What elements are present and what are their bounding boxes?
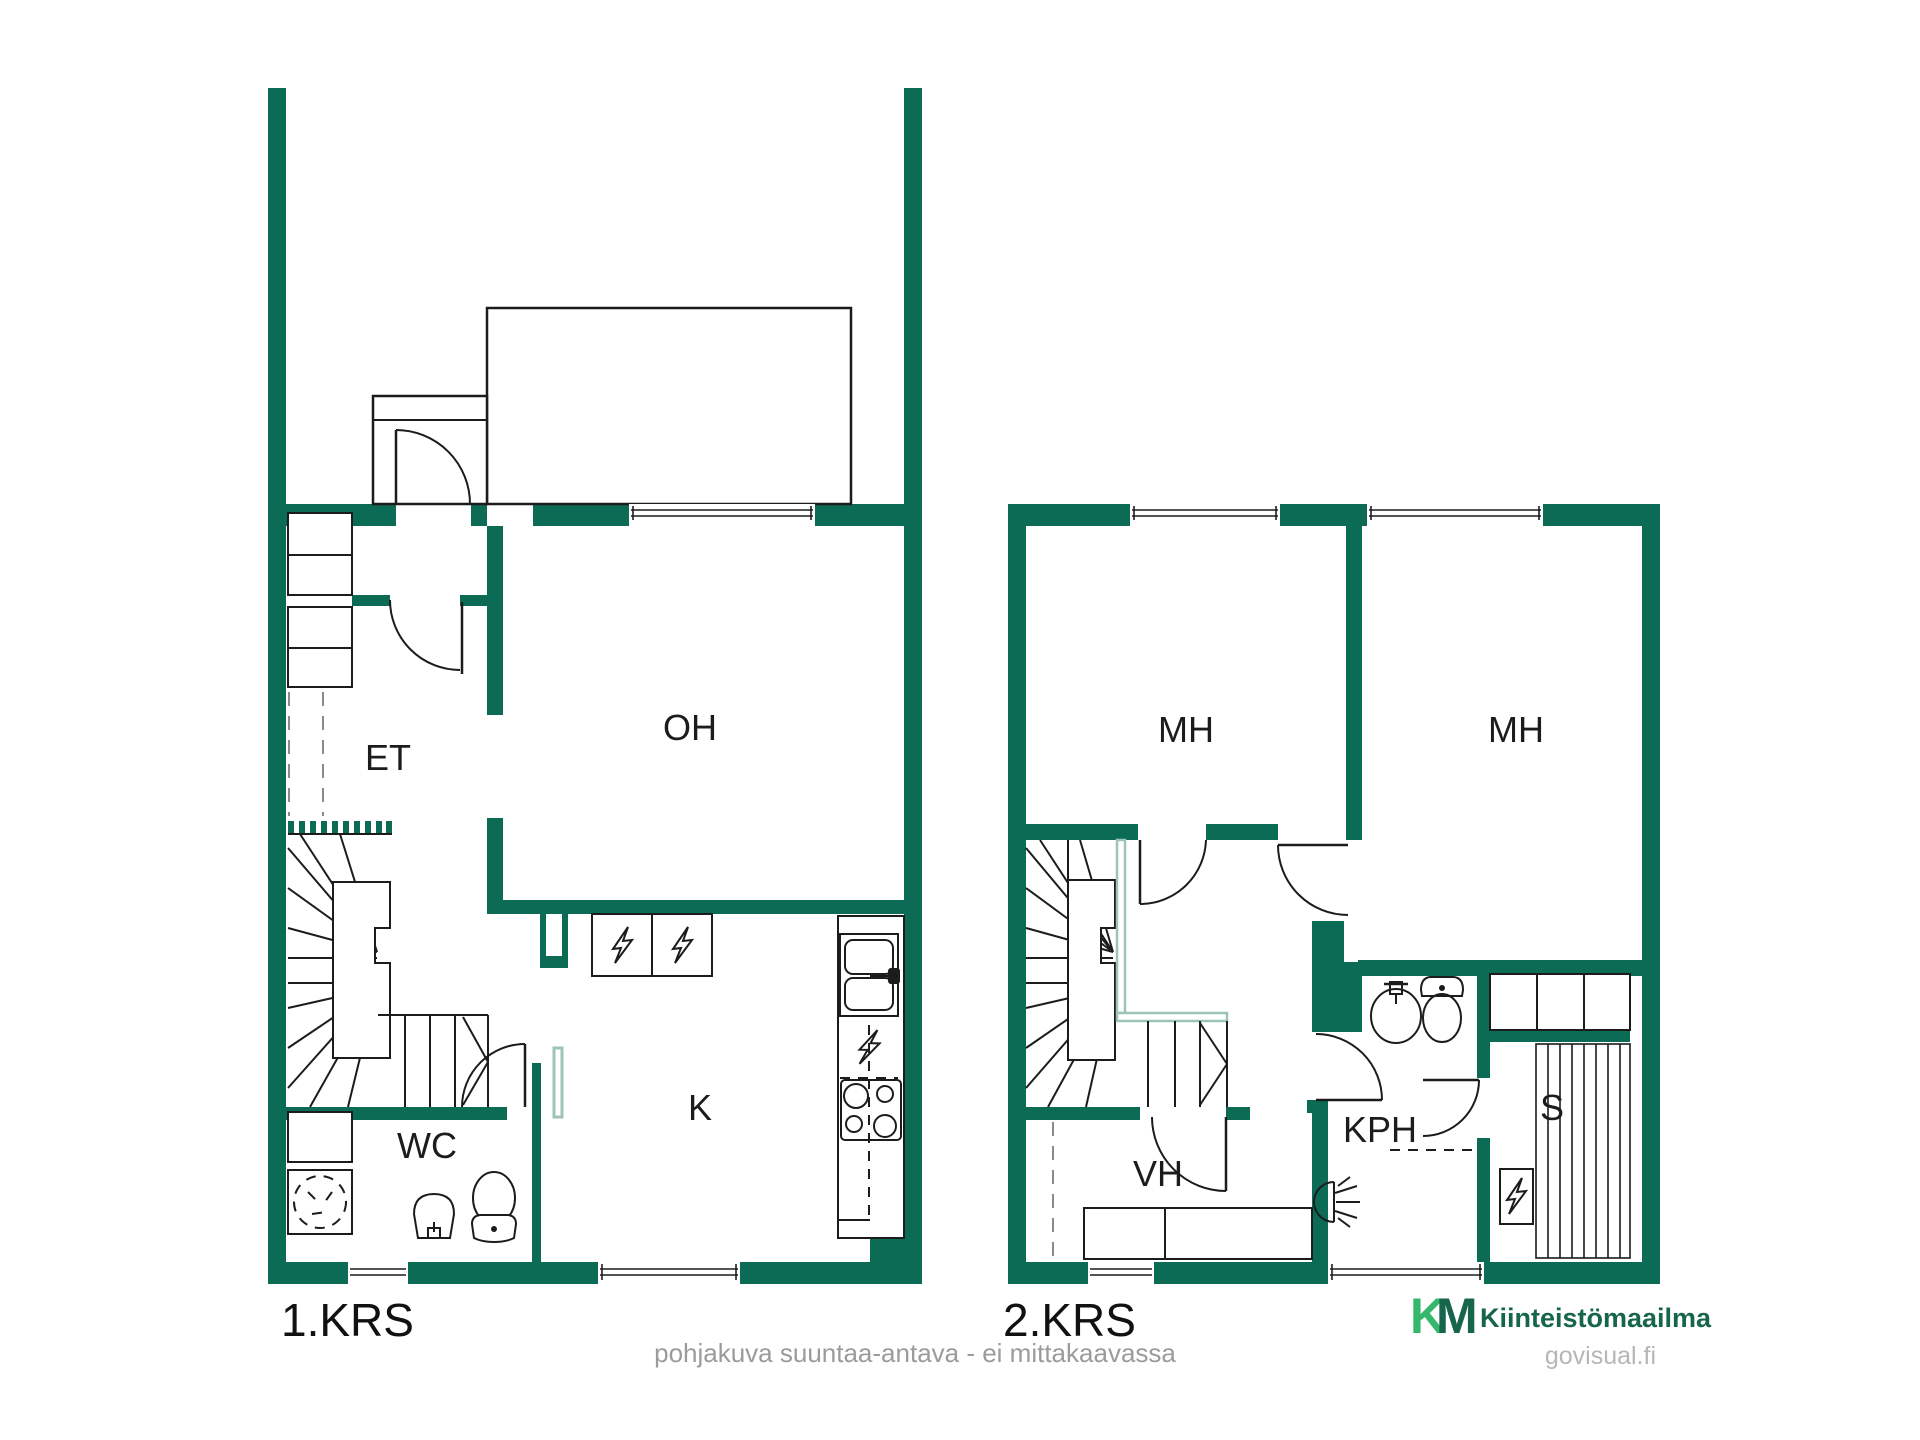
terrace xyxy=(487,308,851,504)
window xyxy=(1088,1262,1154,1284)
door-arc xyxy=(1423,1080,1479,1136)
staircase xyxy=(1026,840,1227,1107)
door-arc xyxy=(390,600,462,674)
toilet-icon xyxy=(1421,977,1463,1042)
sauna-closets xyxy=(1490,974,1630,1030)
km-logo: K M Kiinteistömaailma xyxy=(1410,1288,1712,1344)
sink-unit-icon xyxy=(840,934,900,1016)
room-label-wc: WC xyxy=(397,1125,457,1166)
watermark-text: govisual.fi xyxy=(1545,1342,1656,1370)
window xyxy=(1328,1262,1484,1284)
kitchen-counter xyxy=(838,916,904,1238)
floor1-plan: ET OH K WC 1.KRS xyxy=(268,88,922,1346)
sink-icon xyxy=(1371,982,1421,1043)
door-arc xyxy=(1278,845,1348,915)
wc-cabinet xyxy=(288,1112,352,1162)
staircase xyxy=(288,821,488,1107)
window xyxy=(1130,504,1280,526)
brand-name: Kiinteistömaailma xyxy=(1480,1303,1712,1333)
floorplan-canvas: ET OH K WC 1.KRS xyxy=(0,0,1920,1440)
room-label-mh1: MH xyxy=(1158,709,1214,750)
window xyxy=(598,1262,740,1284)
glass-partition xyxy=(554,1048,562,1117)
floor1-walls xyxy=(268,88,922,1284)
room-label-et: ET xyxy=(365,737,411,778)
door-arc xyxy=(462,1044,525,1107)
washing-machine-icon xyxy=(288,1170,352,1234)
toilet-icon xyxy=(472,1172,516,1242)
floorplan-page: { "floor1": { "label": "1.KRS", "rooms":… xyxy=(0,0,1920,1440)
disclaimer-text: pohjakuva suuntaa-antava - ei mittakaava… xyxy=(654,1338,1176,1368)
room-label-s: S xyxy=(1540,1087,1564,1128)
room-label-kph: KPH xyxy=(1343,1109,1417,1150)
door-arc xyxy=(1316,1034,1382,1100)
fridge-icon xyxy=(592,914,652,976)
porch xyxy=(373,396,487,504)
room-label-mh2: MH xyxy=(1488,709,1544,750)
room-label-vh: VH xyxy=(1133,1153,1183,1194)
room-label-oh: OH xyxy=(663,707,717,748)
window xyxy=(1367,504,1543,526)
freezer-icon xyxy=(652,914,712,976)
km-logo-m-icon: M xyxy=(1436,1288,1478,1344)
floor2-plan: MH MH VH KPH S 2.KRS xyxy=(1003,504,1660,1346)
sink-icon xyxy=(414,1194,454,1238)
window xyxy=(629,504,815,526)
door-arc xyxy=(1140,840,1206,904)
window xyxy=(348,1262,408,1284)
floor1-label: 1.KRS xyxy=(281,1294,414,1346)
sauna-benches xyxy=(1536,1044,1630,1258)
room-label-k: K xyxy=(688,1087,712,1128)
sauna-heater-icon xyxy=(1500,1169,1533,1224)
shower-icon xyxy=(1314,1150,1477,1227)
cabinet xyxy=(288,513,352,687)
